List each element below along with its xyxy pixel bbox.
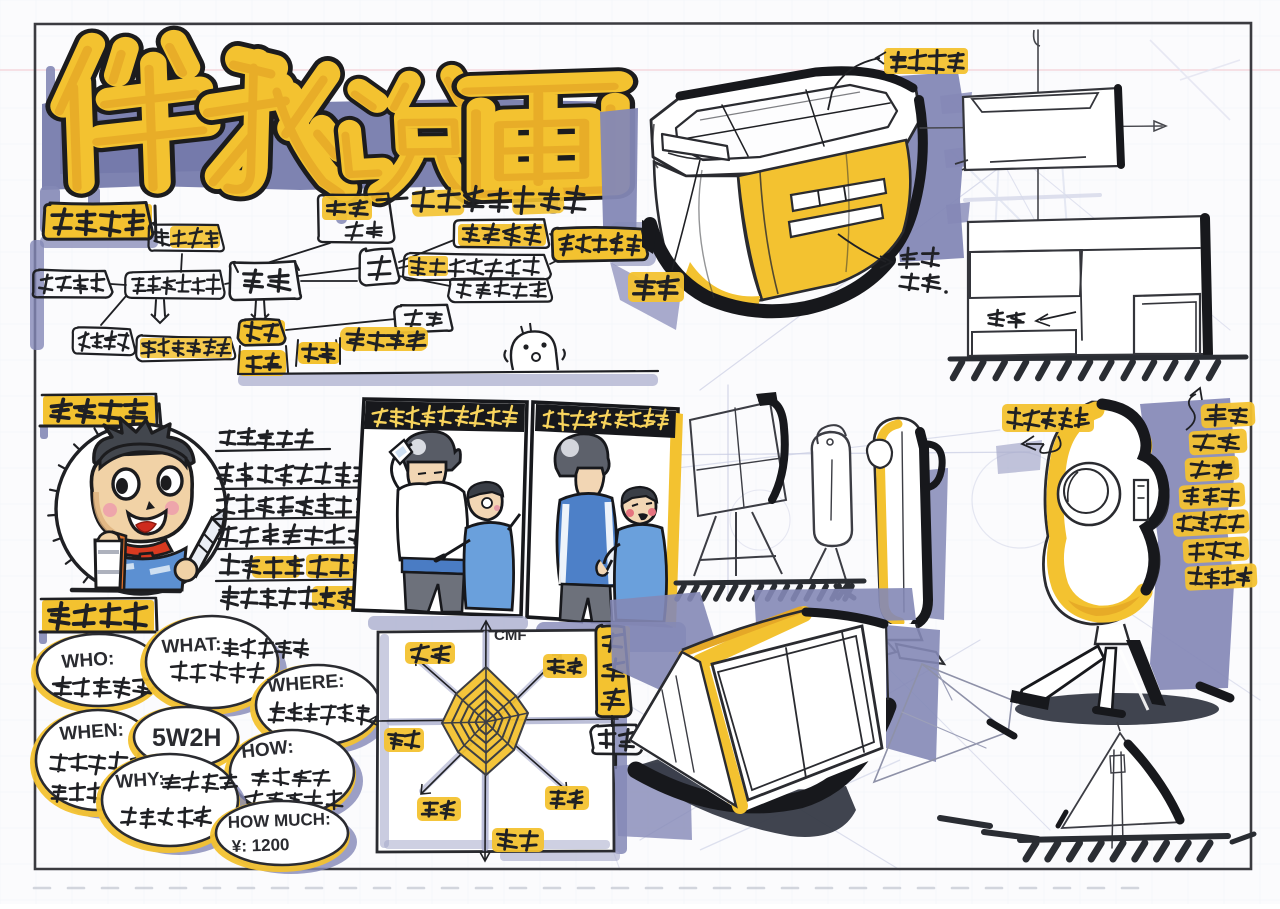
svg-text:WHY:: WHY: xyxy=(115,769,166,793)
svg-text:WHAT:: WHAT: xyxy=(161,634,222,658)
svg-text:WHO:: WHO: xyxy=(61,648,115,673)
svg-text:WHEN:: WHEN: xyxy=(59,720,125,745)
svg-text:CMF: CMF xyxy=(494,627,527,644)
svg-text:¥: 1200: ¥: 1200 xyxy=(231,835,289,856)
svg-text:HOW MUCH:: HOW MUCH: xyxy=(227,809,331,832)
svg-text:5W2H: 5W2H xyxy=(152,724,221,752)
